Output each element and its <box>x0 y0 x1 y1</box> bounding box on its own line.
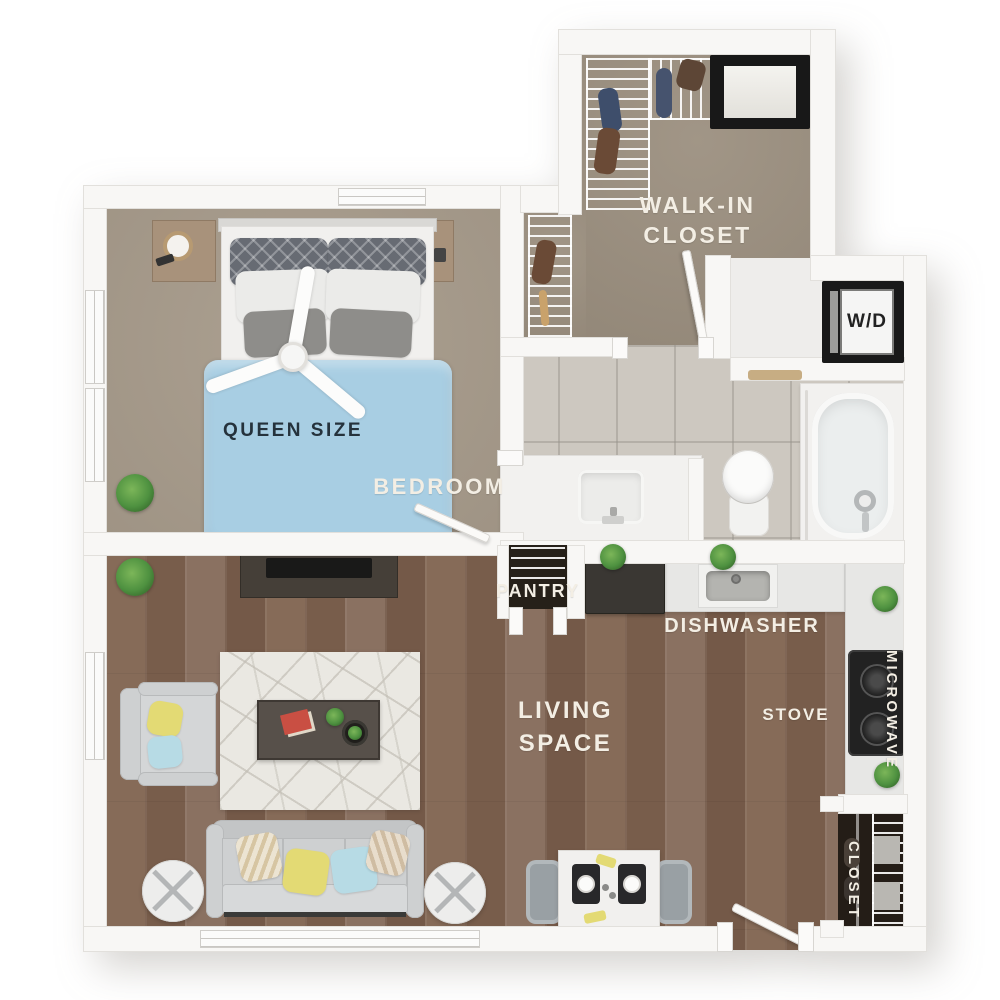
door-jamb <box>698 337 714 359</box>
washer-dryer-unit: W/D <box>840 289 894 355</box>
floor-plan-canvas: W/D <box>0 0 1000 1000</box>
ceiling-fan-hub <box>278 342 308 372</box>
bedroom-window <box>85 388 105 482</box>
living-room-tv <box>266 558 372 578</box>
door-jamb <box>497 450 523 466</box>
armchair-arm <box>138 682 218 696</box>
walk-in-closet-label-line1: WALK-IN <box>580 190 815 220</box>
microwave-label: MICROWAVE <box>876 648 900 772</box>
pepper-shaker <box>609 892 616 899</box>
refrigerator <box>585 556 665 614</box>
decor-bowl-greens <box>348 726 362 740</box>
vanity-faucet-spout <box>610 507 617 516</box>
closet-window-pane <box>724 66 796 118</box>
dishwasher-label: DISHWASHER <box>652 615 832 638</box>
closet-bathroom-wall <box>500 337 622 357</box>
pantry-door-jamb <box>553 607 567 635</box>
living-space-label-line1: LIVING <box>493 694 638 727</box>
exterior-wall <box>903 255 927 952</box>
bathtub-faucet-stem <box>862 512 869 532</box>
potted-plant <box>116 474 154 512</box>
closet-wall <box>558 29 582 215</box>
door-jamb <box>798 922 814 952</box>
pantry-door-jamb <box>509 607 523 635</box>
potted-plant <box>116 558 154 596</box>
living-room-window <box>200 930 480 948</box>
living-space-label: LIVING SPACE <box>493 694 638 760</box>
washer-dryer-label: W/D <box>847 311 887 333</box>
living-room-window <box>85 652 105 760</box>
bathtub <box>812 393 894 539</box>
queen-size-label: QUEEN SIZE <box>178 420 408 442</box>
bedroom-label: BEDROOM <box>372 474 507 500</box>
throw-pillow-yellow <box>281 847 331 897</box>
living-space-label-line2: SPACE <box>493 727 638 760</box>
exterior-wall <box>558 29 836 55</box>
throw-pillow-blue <box>146 734 183 769</box>
vanity-faucet <box>602 516 624 524</box>
bedroom-window <box>85 290 105 384</box>
pantry-label: PANTRY <box>492 581 584 602</box>
shower-curtain <box>805 390 808 542</box>
door-jamb <box>717 922 733 952</box>
dining-chair <box>526 860 562 924</box>
armchair-arm <box>138 772 218 786</box>
floor-plan: W/D <box>0 0 1000 1000</box>
throw-pillow-striped <box>234 831 283 884</box>
exterior-wall <box>798 926 927 952</box>
counter-plant <box>872 586 898 612</box>
sofa-base <box>224 912 406 917</box>
entry-closet-label: CLOSET <box>840 828 862 932</box>
stove-label: STOVE <box>758 705 834 725</box>
counter-plant <box>710 544 736 570</box>
bedroom-wall <box>500 185 524 465</box>
entry-closet-wire-shelf <box>872 812 906 928</box>
coffee-table-plant <box>326 708 344 726</box>
bathroom-partition-wall <box>688 458 704 547</box>
door-jamb <box>612 337 628 359</box>
towel-bar <box>748 370 802 380</box>
exterior-wall <box>83 185 525 209</box>
wall-segment <box>520 185 562 213</box>
pantry-wire-shelf <box>511 547 565 581</box>
hanging-clothes <box>656 68 672 118</box>
nightstand-item <box>434 248 446 262</box>
walk-in-closet-label-line2: CLOSET <box>580 220 815 250</box>
toilet-bowl <box>722 450 774 504</box>
storage-box <box>874 836 900 864</box>
bedroom-window <box>338 188 426 206</box>
throw-pillow-yellow <box>145 699 184 738</box>
walk-in-closet-label: WALK-IN CLOSET <box>580 190 815 250</box>
washer-dryer-side <box>830 291 838 353</box>
bedroom-living-wall <box>83 532 524 556</box>
kitchen-faucet <box>731 574 741 584</box>
plate <box>623 875 641 893</box>
plate <box>577 875 595 893</box>
closet-knee-wall <box>838 794 908 814</box>
wall-stub <box>820 796 844 812</box>
bed-pillow-gray <box>329 308 413 358</box>
salt-shaker <box>602 884 609 891</box>
storage-box <box>874 882 900 910</box>
dining-chair <box>656 860 692 924</box>
counter-plant <box>600 544 626 570</box>
bathtub-drain-faucet <box>854 490 876 512</box>
